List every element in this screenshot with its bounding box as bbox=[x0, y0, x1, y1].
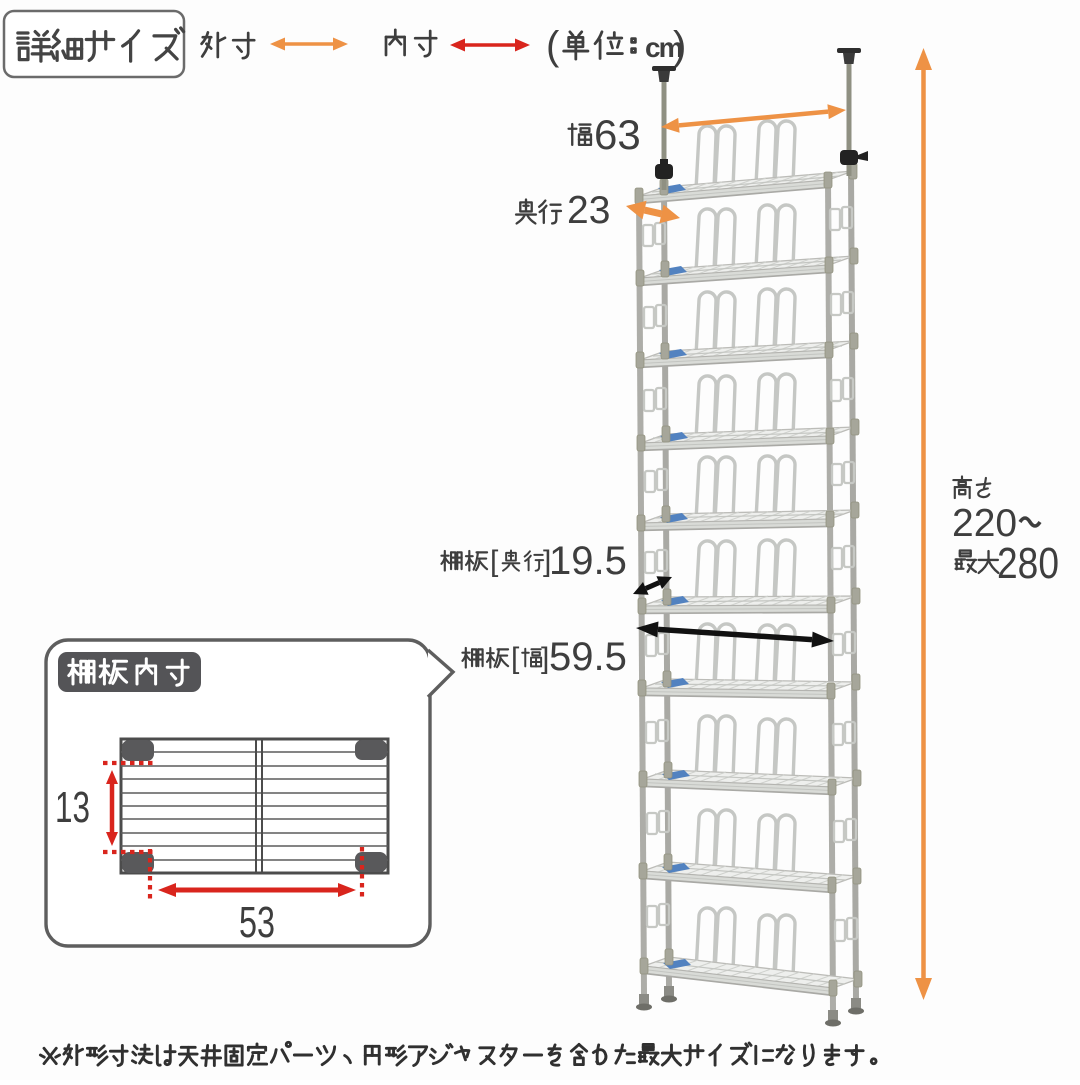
svg-text:59.5: 59.5 bbox=[549, 635, 627, 679]
svg-text:19.5: 19.5 bbox=[549, 539, 627, 583]
svg-text:): ) bbox=[673, 24, 686, 68]
svg-text:[: [ bbox=[490, 545, 499, 578]
svg-text:280: 280 bbox=[997, 539, 1059, 588]
svg-text:53: 53 bbox=[239, 898, 275, 947]
svg-text:[: [ bbox=[511, 642, 520, 675]
svg-text:(: ( bbox=[546, 24, 560, 68]
svg-text:13: 13 bbox=[55, 783, 90, 832]
svg-text:23: 23 bbox=[567, 189, 610, 232]
svg-text:63: 63 bbox=[594, 111, 641, 158]
